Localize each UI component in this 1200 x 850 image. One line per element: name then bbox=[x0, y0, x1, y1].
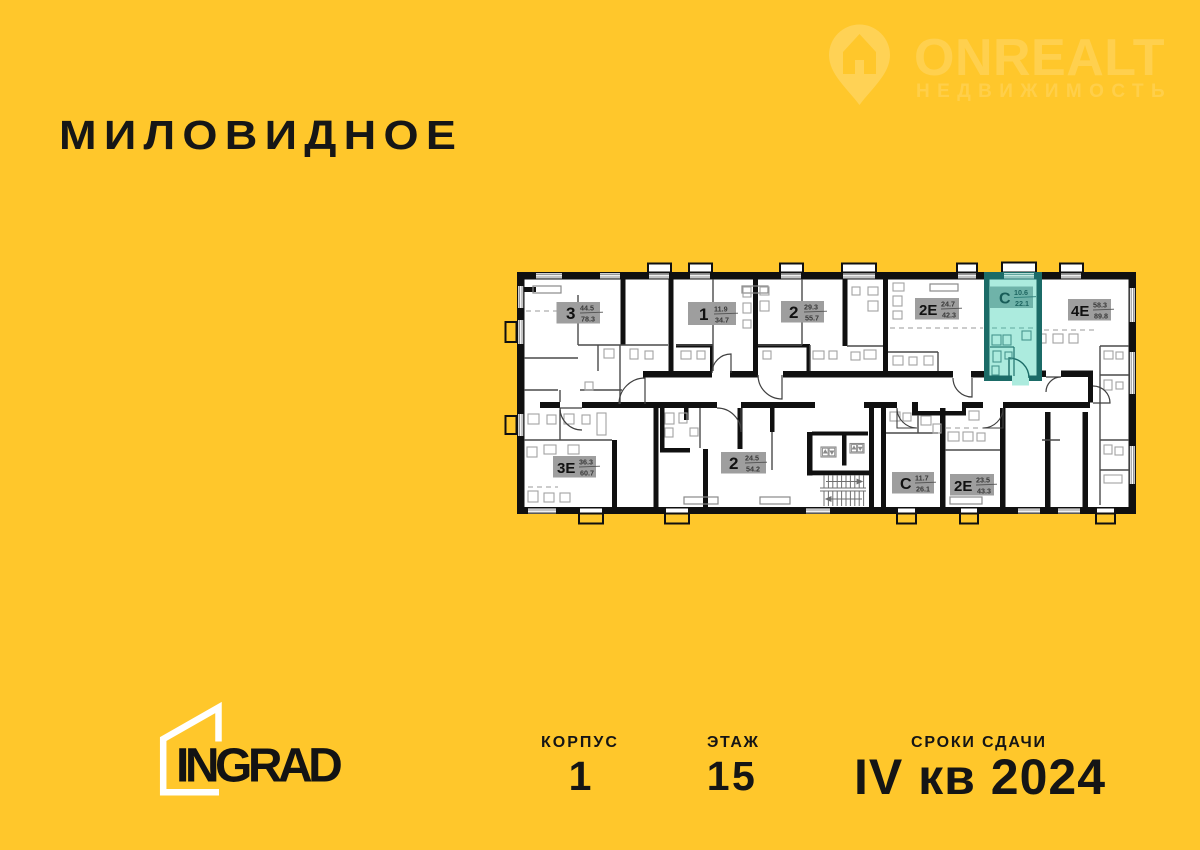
svg-text:3Е: 3Е bbox=[557, 460, 575, 477]
svg-text:43.3: 43.3 bbox=[977, 487, 991, 496]
svg-text:26.1: 26.1 bbox=[916, 485, 930, 494]
svg-text:58.3: 58.3 bbox=[1093, 301, 1107, 310]
svg-text:11.9: 11.9 bbox=[714, 305, 728, 314]
svg-text:2Е: 2Е bbox=[954, 478, 972, 495]
svg-text:22.1: 22.1 bbox=[1015, 299, 1029, 308]
svg-text:24.7: 24.7 bbox=[941, 300, 955, 309]
svg-text:24.5: 24.5 bbox=[745, 454, 759, 463]
svg-text:11.7: 11.7 bbox=[915, 474, 929, 483]
svg-text:34.7: 34.7 bbox=[715, 316, 729, 325]
svg-text:3: 3 bbox=[566, 304, 575, 323]
svg-text:2Е: 2Е bbox=[919, 302, 937, 319]
svg-text:2: 2 bbox=[789, 303, 798, 322]
svg-text:78.3: 78.3 bbox=[581, 315, 595, 324]
svg-text:42.3: 42.3 bbox=[942, 311, 956, 320]
svg-text:10.6: 10.6 bbox=[1014, 288, 1028, 297]
svg-text:1: 1 bbox=[699, 305, 708, 324]
svg-text:55.7: 55.7 bbox=[805, 314, 819, 323]
svg-text:44.5: 44.5 bbox=[580, 304, 594, 313]
svg-text:С: С bbox=[900, 476, 912, 493]
svg-text:23.5: 23.5 bbox=[976, 476, 990, 485]
svg-text:89.8: 89.8 bbox=[1094, 312, 1108, 321]
svg-text:НЕДВИЖИМОСТЬ: НЕДВИЖИМОСТЬ bbox=[916, 81, 1172, 102]
svg-text:54.2: 54.2 bbox=[746, 465, 760, 474]
svg-text:60.7: 60.7 bbox=[580, 469, 594, 478]
svg-text:INGRAD: INGRAD bbox=[176, 740, 341, 793]
svg-text:С: С bbox=[999, 291, 1011, 308]
svg-text:2: 2 bbox=[729, 454, 738, 473]
svg-text:4Е: 4Е bbox=[1071, 303, 1089, 320]
svg-text:ONREALT: ONREALT bbox=[914, 29, 1165, 87]
svg-text:36.3: 36.3 bbox=[579, 458, 593, 467]
svg-text:29.3: 29.3 bbox=[804, 303, 818, 312]
